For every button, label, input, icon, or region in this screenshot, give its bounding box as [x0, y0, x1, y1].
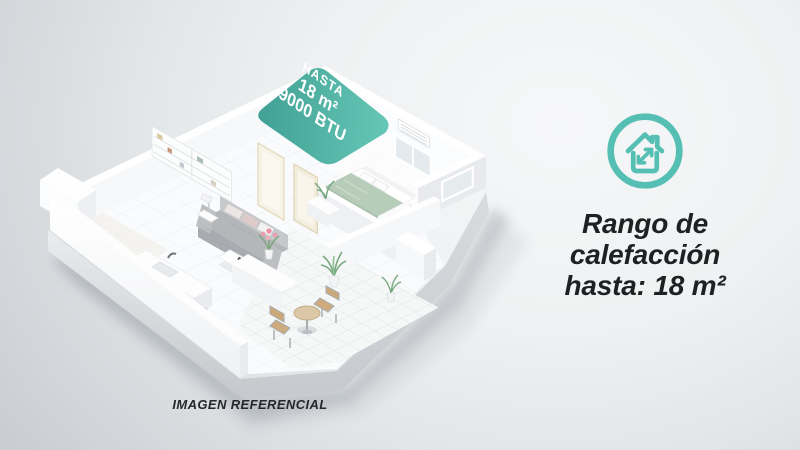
icon-expand-arrow	[638, 149, 651, 162]
reference-caption: IMAGEN REFERENCIAL	[130, 397, 370, 412]
heading-line-3: hasta: 18 m²	[565, 270, 726, 301]
house-expand-icon	[602, 108, 688, 194]
heading: Rango de calefacción hasta: 18 m²	[565, 208, 726, 301]
vase	[265, 250, 273, 259]
heading-line-1: Rango de	[565, 208, 726, 239]
heading-line-2: calefacción	[565, 239, 726, 270]
marketing-banner: HASTA 18 m² 9000 BTU Rango de calefacció…	[0, 0, 800, 450]
info-panel: Rango de calefacción hasta: 18 m²	[500, 108, 790, 301]
